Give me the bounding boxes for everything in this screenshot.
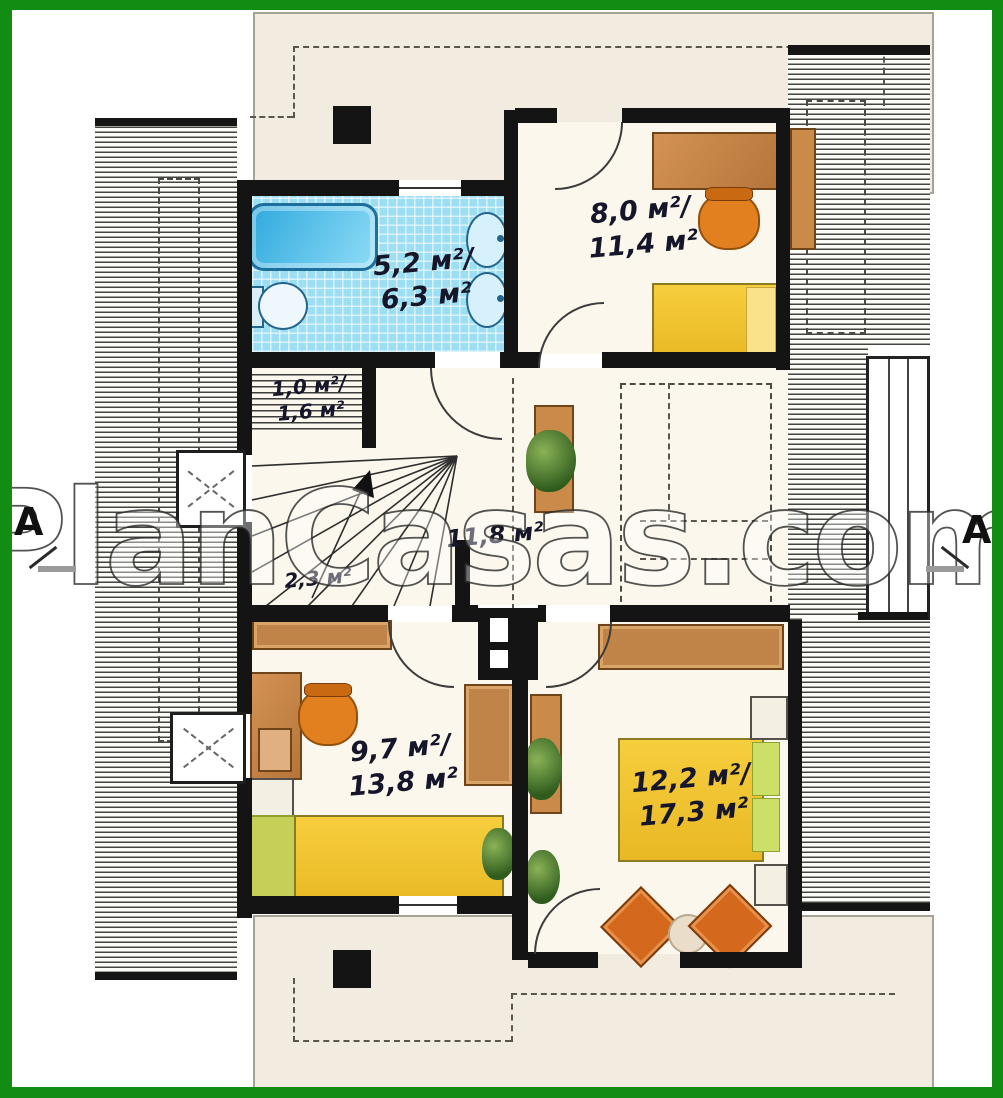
section-bar-left: [38, 566, 76, 572]
desk: [250, 672, 302, 780]
wall-segment: [622, 108, 790, 123]
section-marker-right: A: [962, 508, 991, 552]
roof-overhang-dash: [293, 46, 295, 118]
roof-overhang-dash: [883, 46, 885, 106]
section-bar-right: [926, 566, 964, 572]
wall-segment: [602, 352, 790, 368]
nightstand: [250, 778, 294, 818]
builtin-wardrobe: [790, 128, 816, 250]
flue-opening: [490, 618, 508, 642]
roof-overhang-dash: [511, 993, 895, 995]
roof-hatch-right-bottom: [802, 618, 930, 910]
frame-top: [0, 0, 1003, 10]
roof-overhang-dash: [293, 1040, 511, 1042]
frame-right: [992, 0, 1003, 1098]
chimney-top: [333, 106, 371, 144]
room-label-bedroom-right: 12,2 м²/ 17,3 м²: [617, 756, 767, 836]
window: [397, 896, 459, 914]
room-label-closet: 1,0 м²/ 1,6 м²: [252, 369, 368, 429]
nightstand: [750, 696, 788, 740]
single-bed: [294, 815, 504, 909]
wall-segment: [528, 952, 598, 968]
frame-left: [0, 0, 12, 1098]
wall-segment: [455, 896, 528, 914]
roof-edge: [95, 118, 237, 126]
nightstand: [754, 864, 788, 906]
roof-edge: [95, 972, 237, 980]
wall-segment: [515, 108, 557, 123]
wardrobe: [598, 624, 784, 670]
wall-segment: [237, 180, 397, 196]
dormer-window: [170, 712, 246, 784]
wall-segment: [504, 110, 518, 368]
wall-segment: [237, 180, 252, 455]
chimney-bottom: [333, 950, 371, 988]
flue-opening: [490, 650, 508, 668]
window: [397, 180, 463, 196]
toilet: [258, 282, 308, 330]
wall-segment: [776, 108, 790, 370]
chimney-flue: [478, 608, 538, 680]
bed-headboard: [248, 815, 298, 909]
pillow: [746, 287, 776, 355]
desk: [652, 132, 782, 190]
wall-segment: [788, 620, 802, 965]
wall-segment: [237, 896, 397, 914]
watermark: PlanCasas.com: [0, 462, 1003, 616]
roof-overhang-dash: [250, 116, 293, 118]
dresser: [252, 620, 392, 650]
wall-segment: [237, 352, 435, 368]
room-label-bathroom: 5,2 м²/ 6,3 м²: [357, 240, 492, 319]
wall-segment: [500, 352, 540, 368]
roof-edge: [802, 903, 930, 911]
section-marker-left: A: [14, 500, 43, 544]
floor-plan: 5,2 м²/ 6,3 м² 8,0 м²/ 11,4 м² 1,0 м²/ 1…: [0, 0, 1003, 1098]
room-label-bedroom-top: 8,0 м²/ 11,4 м²: [569, 188, 714, 267]
frame-bottom: [0, 1087, 1003, 1098]
roof-edge: [788, 45, 930, 55]
wall-segment: [680, 952, 802, 968]
roof-overhang-dash: [511, 993, 513, 1042]
roof-overhang-dash: [293, 978, 295, 1042]
room-label-bedroom-left: 9,7 м²/ 13,8 м²: [329, 726, 474, 805]
